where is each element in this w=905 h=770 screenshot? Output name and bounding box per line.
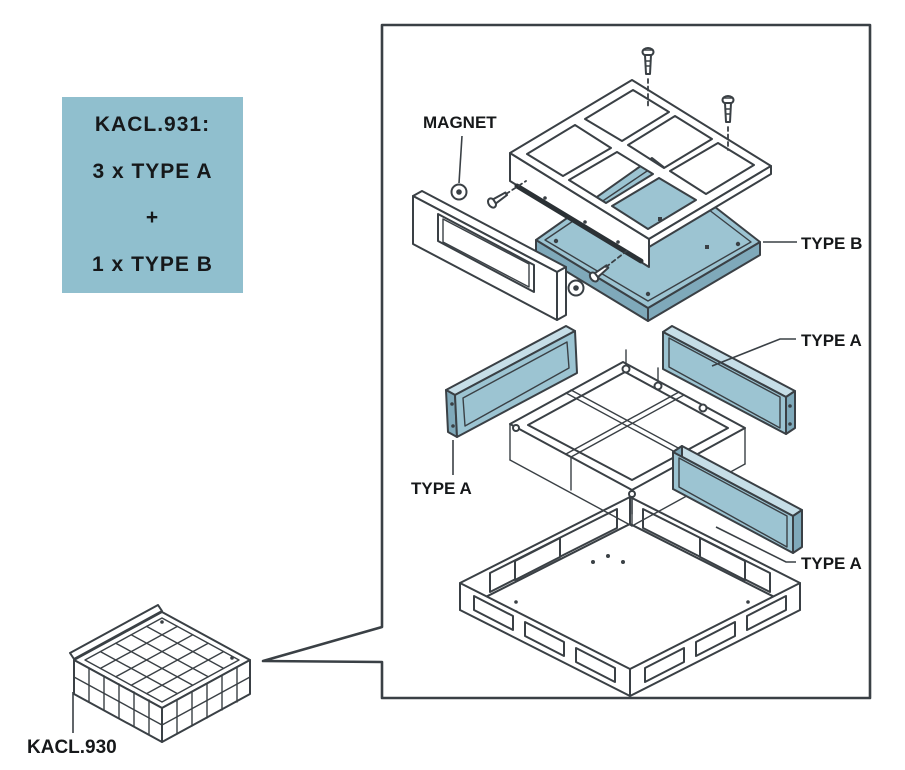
kacl930-filter (70, 605, 250, 742)
magnet-washer-1 (452, 185, 467, 200)
diagram-canvas: MAGNET TYPE B TYPE A TYPE A TYPE A KACL.… (0, 0, 905, 770)
type-a-label-right-upper: TYPE A (801, 331, 862, 350)
exploded-diagram-page: KACL.931: 3 x TYPE A + 1 x TYPE B (0, 0, 905, 770)
screw-side-1 (486, 190, 509, 210)
type-a-panel-left (446, 326, 577, 437)
type-a-label-right-lower: TYPE A (801, 554, 862, 573)
door-panel (413, 191, 566, 320)
magnet-washer-2 (569, 281, 584, 296)
type-a-panel-right-upper (663, 326, 795, 434)
magnet-label: MAGNET (423, 113, 497, 132)
type-a-label-left: TYPE A (411, 479, 472, 498)
type-b-label: TYPE B (801, 234, 862, 253)
kacl930-label: KACL.930 (27, 737, 117, 758)
